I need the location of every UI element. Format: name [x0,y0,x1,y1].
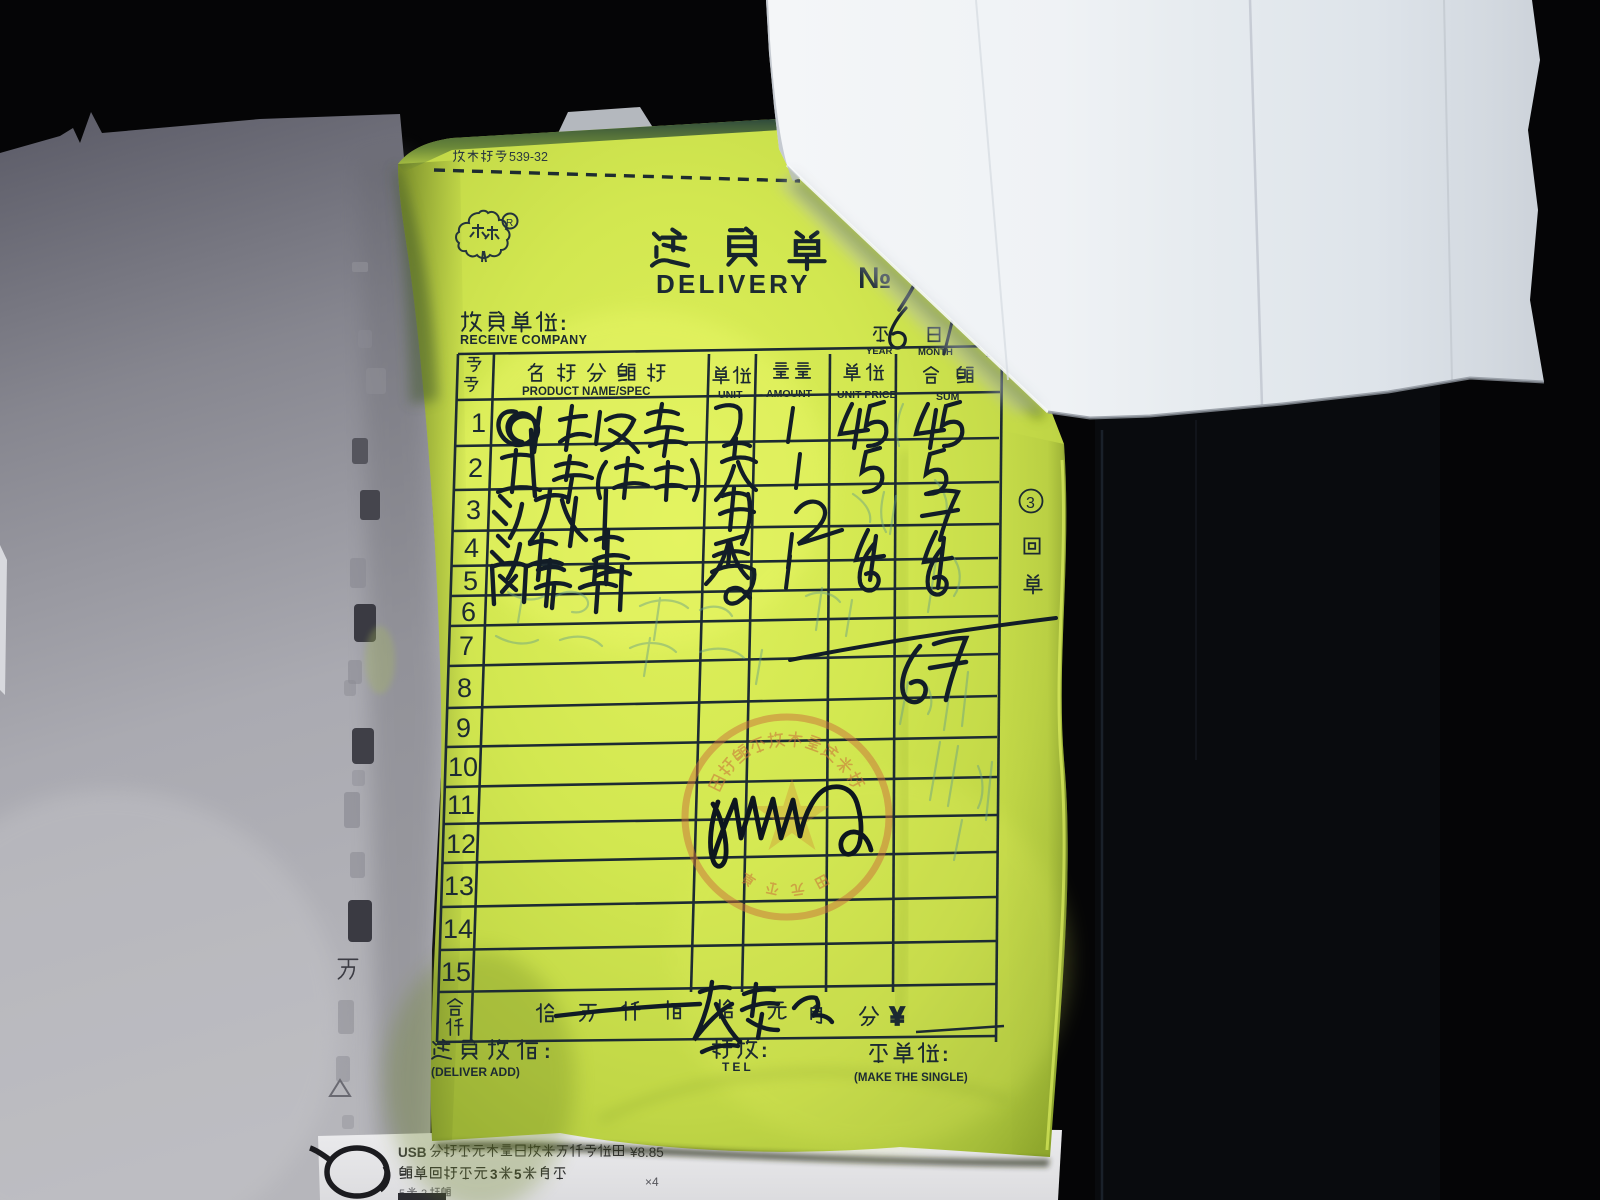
svg-text:14: 14 [443,914,473,944]
svg-text:1: 1 [471,408,486,438]
svg-text:UNIT PRICE: UNIT PRICE [837,389,897,401]
svg-text:5: 5 [463,566,478,596]
svg-text:8: 8 [457,673,472,703]
svg-text:(DELIVER ADD): (DELIVER ADD) [431,1065,520,1079]
svg-text:UNIT: UNIT [718,389,743,401]
svg-text:DELIVERY: DELIVERY [656,269,811,299]
svg-text:2: 2 [468,453,483,483]
svg-text:PRODUCT NAME/SPEC: PRODUCT NAME/SPEC [522,386,650,398]
svg-text:7: 7 [459,631,474,661]
svg-text::: : [560,313,567,335]
svg-text:4: 4 [464,533,479,563]
svg-text:11: 11 [447,790,475,820]
svg-text:×4: ×4 [645,1175,659,1189]
svg-text::: : [761,1040,768,1062]
svg-text:6: 6 [461,597,476,627]
svg-text::: : [942,1044,949,1066]
svg-text:12: 12 [446,829,476,859]
svg-text:(MAKE THE SINGLE): (MAKE THE SINGLE) [854,1072,968,1084]
svg-text:13: 13 [444,871,474,901]
svg-text:539-32: 539-32 [509,150,548,164]
svg-text:15: 15 [441,957,471,987]
svg-text:TEL: TEL [722,1060,754,1074]
svg-text::: : [544,1041,551,1063]
svg-text:¥: ¥ [890,1001,905,1031]
svg-text:9: 9 [456,713,471,743]
svg-text:3: 3 [466,495,481,525]
svg-text:3: 3 [1026,495,1035,512]
svg-text:10: 10 [448,752,478,782]
svg-text:R: R [506,218,513,229]
svg-text:RECEIVE COMPANY: RECEIVE COMPANY [460,333,588,347]
svg-text:AMOUNT: AMOUNT [766,388,813,400]
